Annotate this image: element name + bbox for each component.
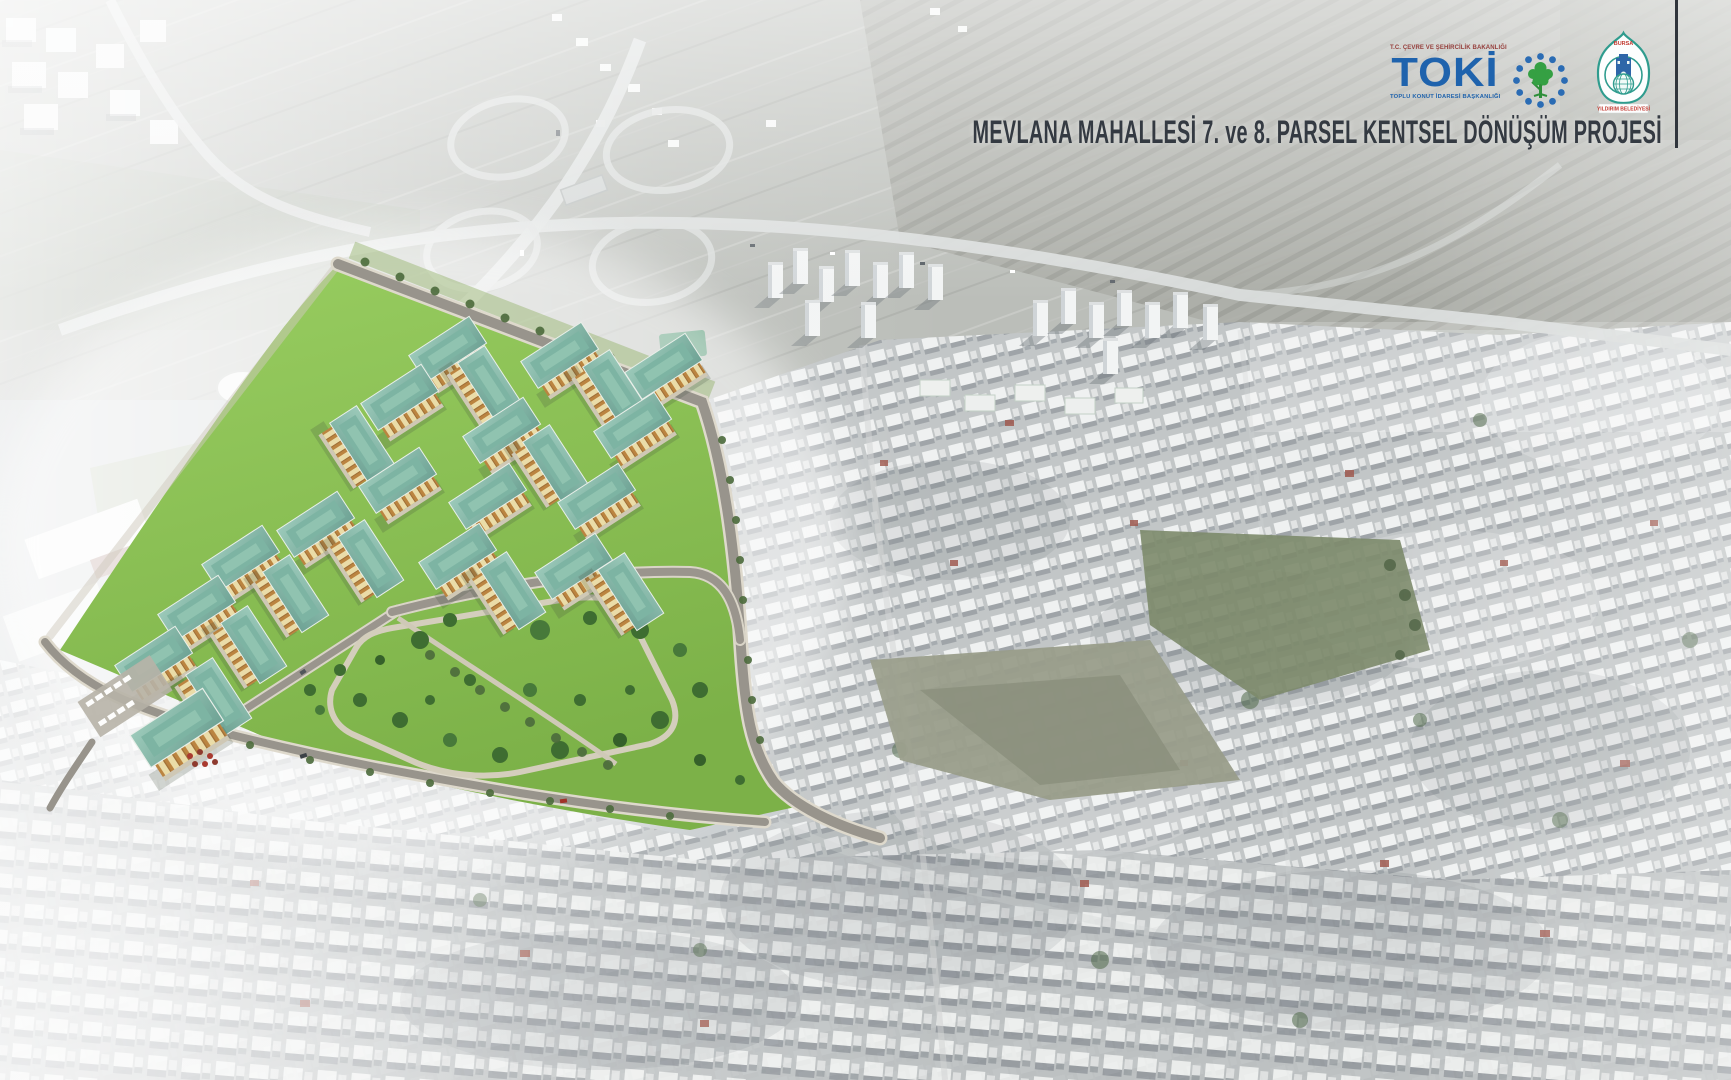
yildirim-belediyesi-logo: BURSA YILDIRIM BELEDİYESİ	[1592, 30, 1655, 114]
aerial-scene	[0, 0, 1731, 1080]
ministry-tree-icon	[1512, 52, 1569, 109]
toki-logo: T.C. ÇEVRE VE ŞEHİRCİLİK BAKANLIĞI TOKİ …	[1390, 45, 1500, 101]
toki-wordmark: TOKİ	[1387, 52, 1504, 93]
tree-glyph	[1528, 62, 1553, 98]
header-separator-line	[1675, 0, 1678, 148]
municipality-city-label: BURSA	[1614, 41, 1634, 47]
project-board: T.C. ÇEVRE VE ŞEHİRCİLİK BAKANLIĞI TOKİ …	[0, 0, 1731, 1080]
municipality-name-label: YILDIRIM BELEDİYESİ	[1597, 106, 1651, 113]
globe-glyph	[1614, 74, 1634, 94]
project-title: MEVLANA MAHALLESİ 7. ve 8. PARSEL KENTSE…	[973, 114, 1662, 151]
toki-subtitle-line: TOPLU KONUT İDARESİ BAŞKANLIĞI	[1390, 95, 1500, 101]
